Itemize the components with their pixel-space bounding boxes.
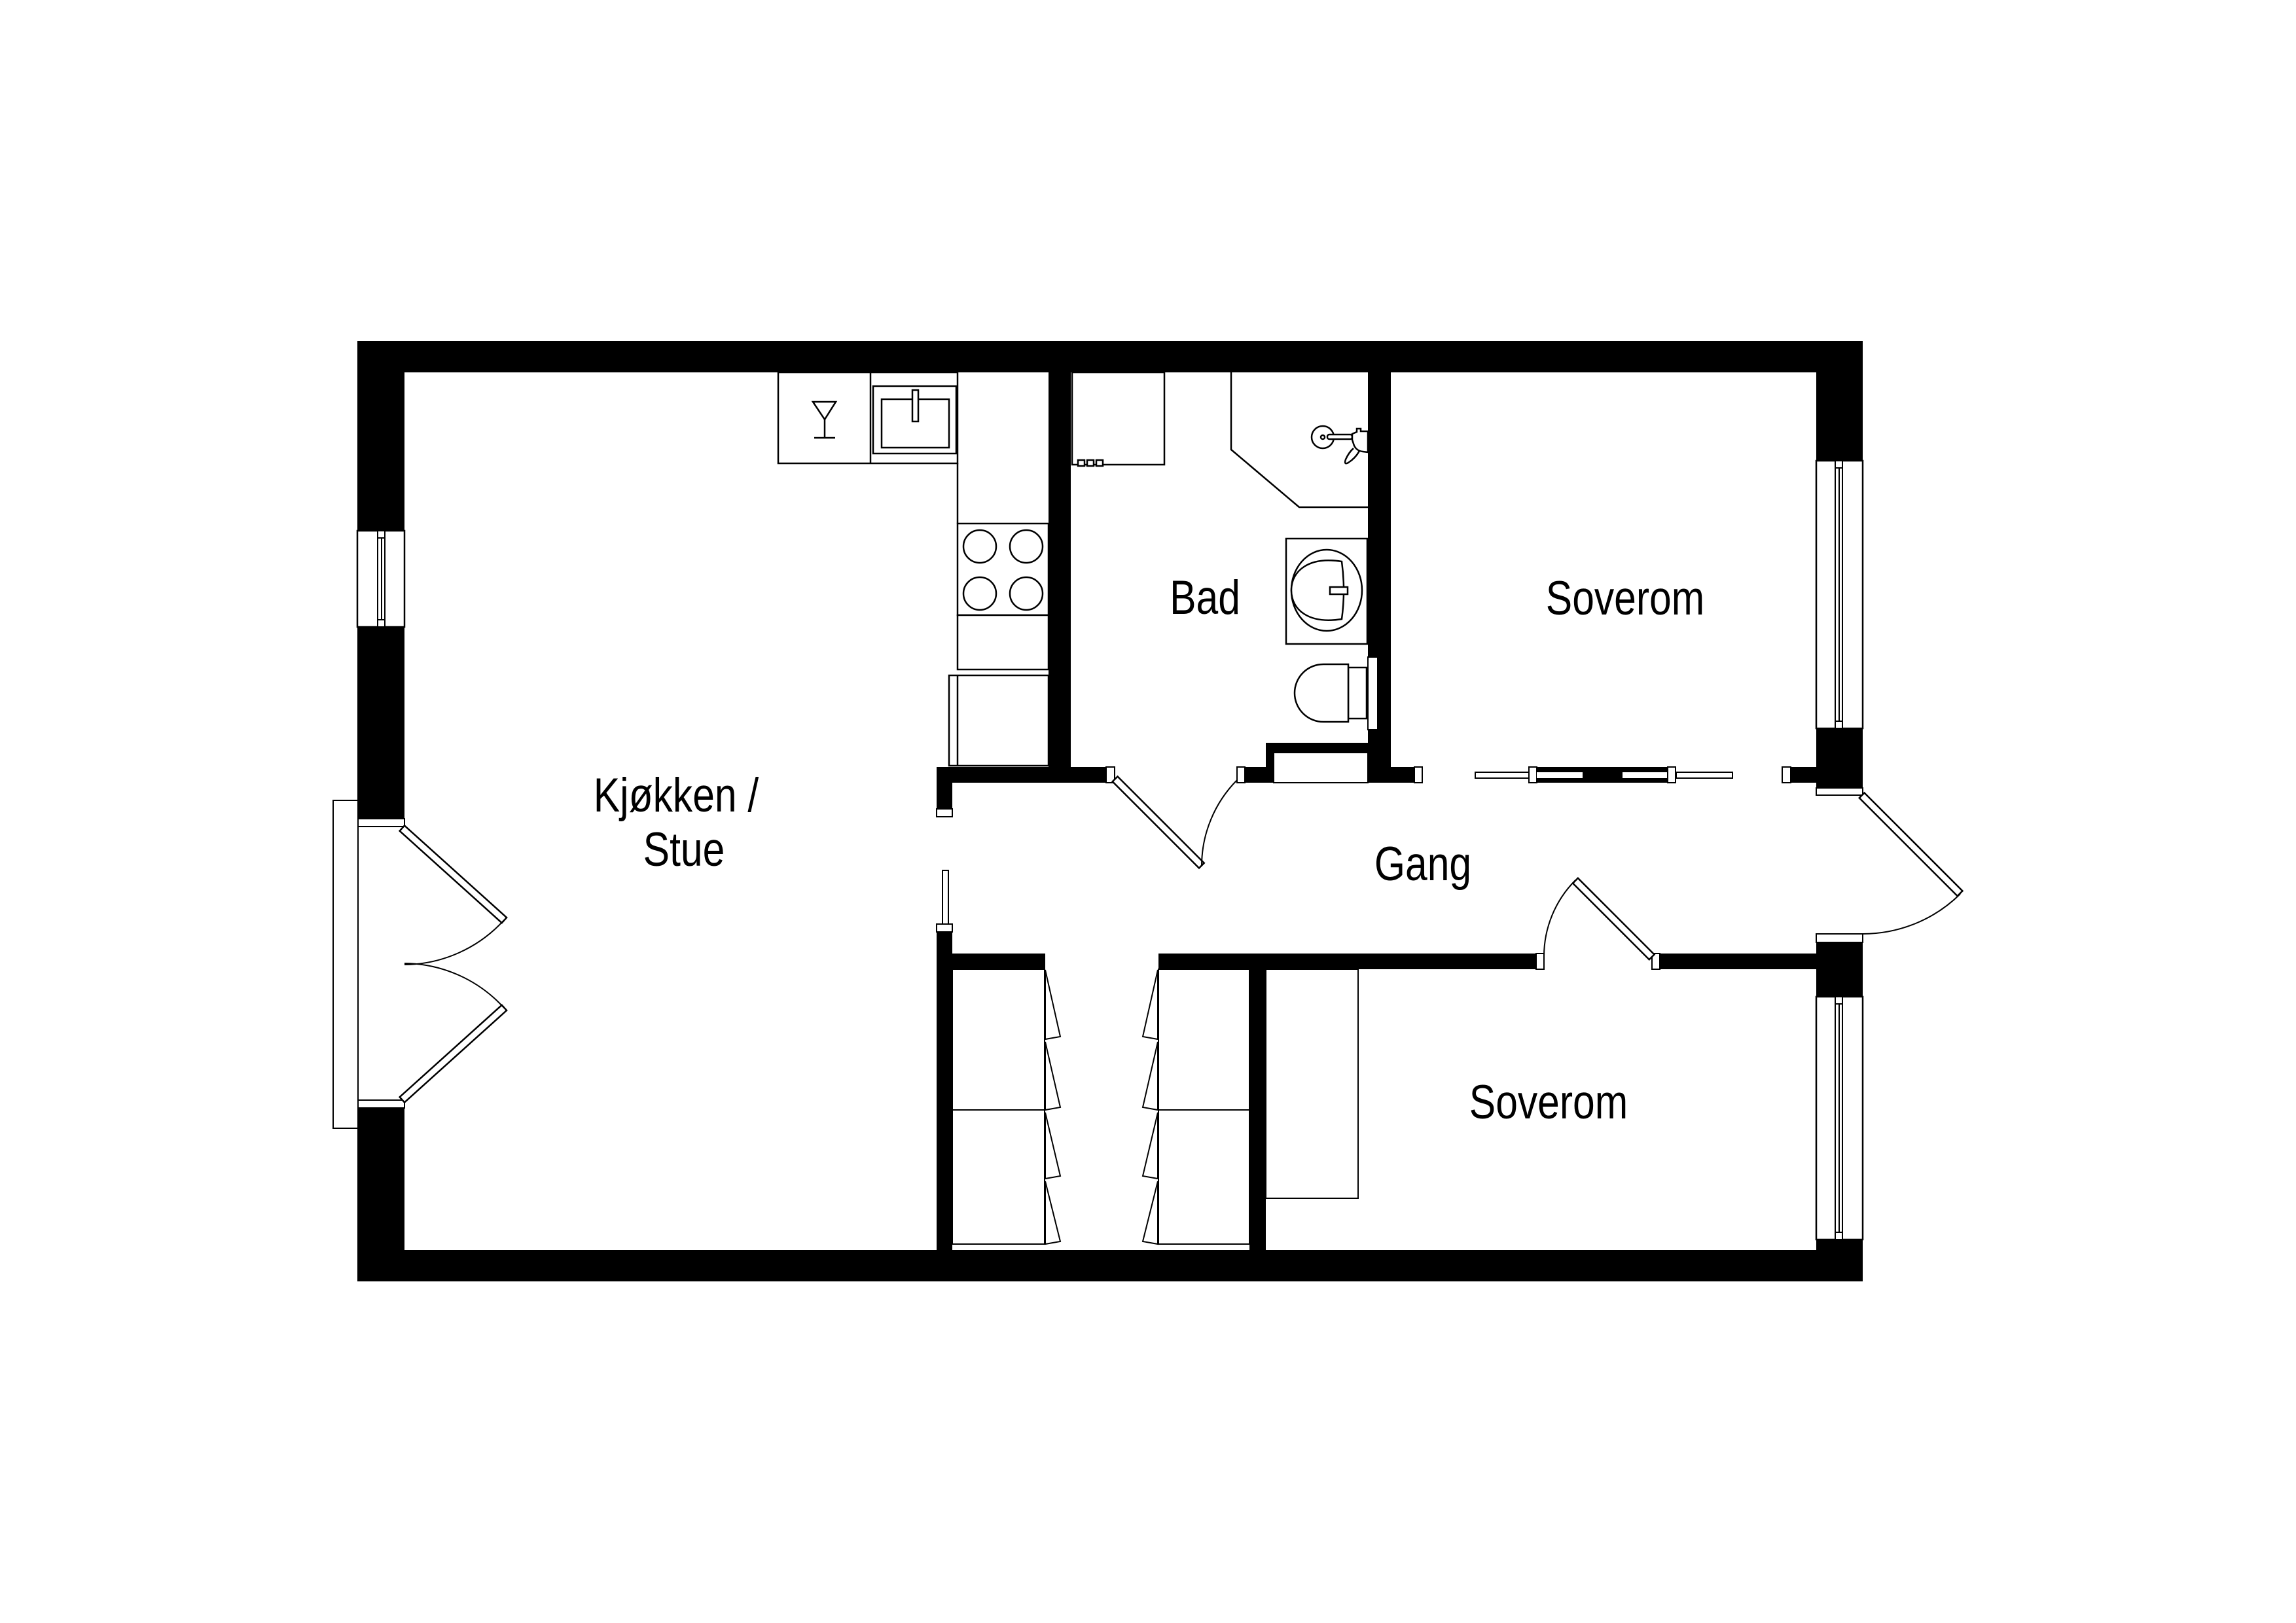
svg-text:Gang: Gang (1374, 838, 1471, 891)
svg-text:Bad: Bad (1170, 571, 1240, 625)
svg-text:Soverom: Soverom (1469, 1076, 1628, 1130)
svg-text:Stue: Stue (643, 823, 725, 877)
svg-text:Kjøkken /: Kjøkken / (594, 769, 759, 823)
svg-text:Soverom: Soverom (1546, 572, 1704, 626)
